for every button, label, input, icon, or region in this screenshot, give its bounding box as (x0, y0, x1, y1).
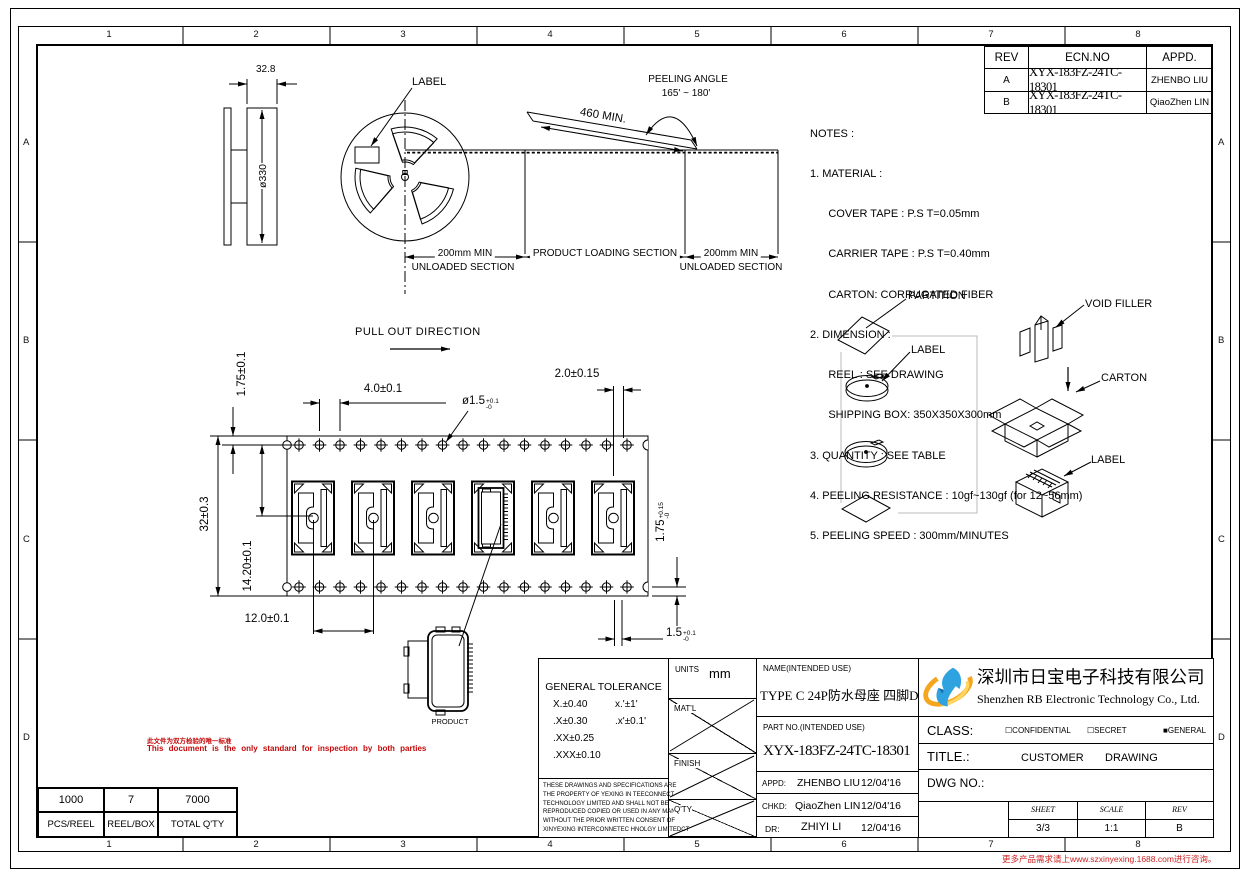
unloaded-dim-left: 200mm MIN (435, 249, 495, 260)
title-row: TITLE.: CUSTOMER DRAWING (918, 743, 1214, 770)
chkd-date: 12/04'16 (861, 800, 901, 812)
appd-cell: ZHENBO LIU (1147, 69, 1212, 92)
reel-per-box-value: 7 (105, 789, 159, 813)
dim-slot: 1.5+0.1-0 (666, 627, 696, 643)
notes-block: NOTES : 1. MATERIAL : COVER TAPE : P.S T… (810, 101, 1082, 570)
dim-edge-to-hole: 1.75±0.1 (236, 351, 248, 398)
footer-note: 更多产品需求请上www.szxinyexing.1688.com进行咨询。 (1002, 853, 1216, 865)
drawing-sheet: 1 2 3 4 5 6 7 8 1 2 3 4 5 6 7 8 A B C D … (0, 0, 1249, 883)
total-qty-value: 7000 (159, 789, 236, 813)
appd-cell: QiaoZhen LIN (1147, 92, 1212, 113)
chkd-value: QiaoZhen LIN (795, 800, 860, 812)
company-name-en: Shenzhen RB Electronic Technology Co., L… (977, 692, 1200, 707)
company-name-zh: 深圳市日宝电子科技有限公司 (977, 664, 1205, 689)
rev-cell: REV B (1145, 801, 1214, 838)
class-option-secret: ☐SECRET (1087, 726, 1127, 735)
void-filler-label: VOID FILLER (1085, 299, 1152, 311)
pcs-per-reel-label: PCS/REEL (39, 813, 105, 836)
chkd-row: CHKD: QiaoZhen LIN 12/04'16 (756, 793, 919, 817)
name-value: TYPE C 24P防水母座 四脚DIP (760, 685, 930, 704)
legal-cell: THESE DRAWINGS AND SPECIFICATIONS ARE TH… (538, 778, 669, 838)
units-value: mm (709, 666, 731, 681)
partition-label: PARTITION (908, 291, 966, 303)
legal-text: THESE DRAWINGS AND SPECIFICATIONS ARE TH… (543, 782, 668, 835)
tolerance-cell: GENERAL TOLERANCE X.±0.40 x.'±1' .X±0.30… (538, 658, 669, 779)
appd-header: APPD. (1147, 47, 1212, 69)
carrier-dimensions (210, 386, 686, 646)
rev-cell: B (985, 92, 1029, 113)
tape-band (405, 150, 778, 257)
dwg-no-row: DWG NO.: (918, 769, 1214, 802)
rev-header: REV (985, 47, 1029, 69)
dim-hole-pitch: 4.0±0.1 (364, 383, 402, 395)
total-qty-label: TOTAL Q'TY (159, 813, 236, 836)
carrier-tape-detail (283, 349, 648, 646)
part-no-value: XYX-183FZ-24TC-18301 (763, 743, 910, 760)
ecn-header: ECN.NO (1029, 47, 1147, 69)
finish-cell: FINISH (668, 753, 757, 800)
class-option-general: ■GENERAL (1163, 726, 1206, 735)
scale-cell: SCALE 1:1 (1077, 801, 1146, 838)
rev-cell: A (985, 69, 1029, 92)
inspection-note-en: This document is the only standard for i… (147, 744, 426, 753)
appd-value: ZHENBO LIU (797, 777, 860, 789)
dim-reel-flange-width: 32.8 (256, 65, 275, 76)
revision-table: REV ECN.NO APPD. A XYX-183FZ-24TC-18301 … (984, 46, 1213, 114)
loading-section-label: PRODUCT LOADING SECTION (530, 249, 680, 260)
dim-bottom-edge: 1.75+0.15-0 (655, 501, 671, 543)
dim-pocket-pitch: 12.0±0.1 (245, 613, 290, 625)
carton-label: CARTON (1101, 373, 1147, 385)
reel-label-callout: LABEL (412, 77, 446, 89)
product-view-label: PRODUCT (431, 718, 468, 726)
peeling-angle-value: 165' ~ 180' (662, 89, 711, 100)
units-cell: UNITS mm (668, 658, 757, 699)
dr-row: DR: ZHIYI LI 12/04'16 (756, 816, 919, 838)
class-row: CLASS: ☐CONFIDENTIAL ☐SECRET ■GENERAL (918, 716, 1214, 744)
appd-date: 12/04'16 (861, 777, 901, 789)
class-option-confidential: ☐CONFIDENTIAL (1005, 726, 1071, 735)
ecn-cell: XYX-183FZ-24TC-18301 (1029, 69, 1147, 92)
part-no-cell: PART NO.(INTENDED USE) XYX-183FZ-24TC-18… (756, 716, 919, 772)
rev-value: B (1146, 823, 1213, 834)
peeling-angle-text: PEELING ANGLE (648, 75, 727, 86)
quantity-table: 1000 7 7000 PCS/REEL REEL/BOX TOTAL Q'TY (37, 787, 238, 838)
dim-hole-diameter: ø1.5+0.1-0 (462, 395, 499, 411)
dr-value: ZHIYI LI (801, 821, 841, 833)
projection-cell (918, 801, 1009, 838)
reel-pack-label: LABEL (911, 345, 945, 357)
dim-reel-diameter: ø330 (257, 163, 269, 189)
company-cell: 深圳市日宝电子科技有限公司 Shenzhen RB Electronic Tec… (918, 658, 1214, 717)
box-label: LABEL (1091, 455, 1125, 467)
dim-hole-to-pocket: 2.0±0.15 (555, 368, 600, 380)
notes-title: NOTES : (810, 128, 1082, 141)
unloaded-label-left: UNLOADED SECTION (412, 263, 515, 274)
dim-tape-width: 32±0.3 (199, 495, 211, 532)
sheet-cell: SHEET 3/3 (1008, 801, 1078, 838)
unloaded-label-right: UNLOADED SECTION (680, 263, 783, 274)
dim-hole-to-center: 14.20±0.1 (242, 539, 254, 592)
name-cell: NAME(INTENDED USE) TYPE C 24P防水母座 四脚DIP (756, 658, 919, 717)
reel-side-view (224, 79, 297, 245)
material-cell: MAT'L (668, 698, 757, 754)
ecn-cell: XYX-183FZ-24TC-18301 (1029, 92, 1147, 113)
title-value-2: DRAWING (1105, 752, 1158, 764)
reel-per-box-label: REEL/BOX (105, 813, 159, 836)
unloaded-dim-right: 200mm MIN (701, 249, 761, 260)
company-logo-icon (921, 661, 975, 715)
tolerance-title: GENERAL TOLERANCE (539, 681, 668, 693)
pcs-per-reel-value: 1000 (39, 789, 105, 813)
appd-row: APPD: ZHENBO LIU 12/04'16 (756, 771, 919, 794)
pull-out-direction-label: PULL OUT DIRECTION (355, 327, 481, 339)
qty-cell: Q'TY (668, 799, 757, 838)
scale-value: 1:1 (1078, 823, 1145, 834)
product-view (404, 627, 473, 715)
dr-date: 12/04'16 (861, 822, 901, 834)
title-value-1: CUSTOMER (1021, 752, 1084, 764)
sheet-value: 3/3 (1009, 823, 1077, 834)
